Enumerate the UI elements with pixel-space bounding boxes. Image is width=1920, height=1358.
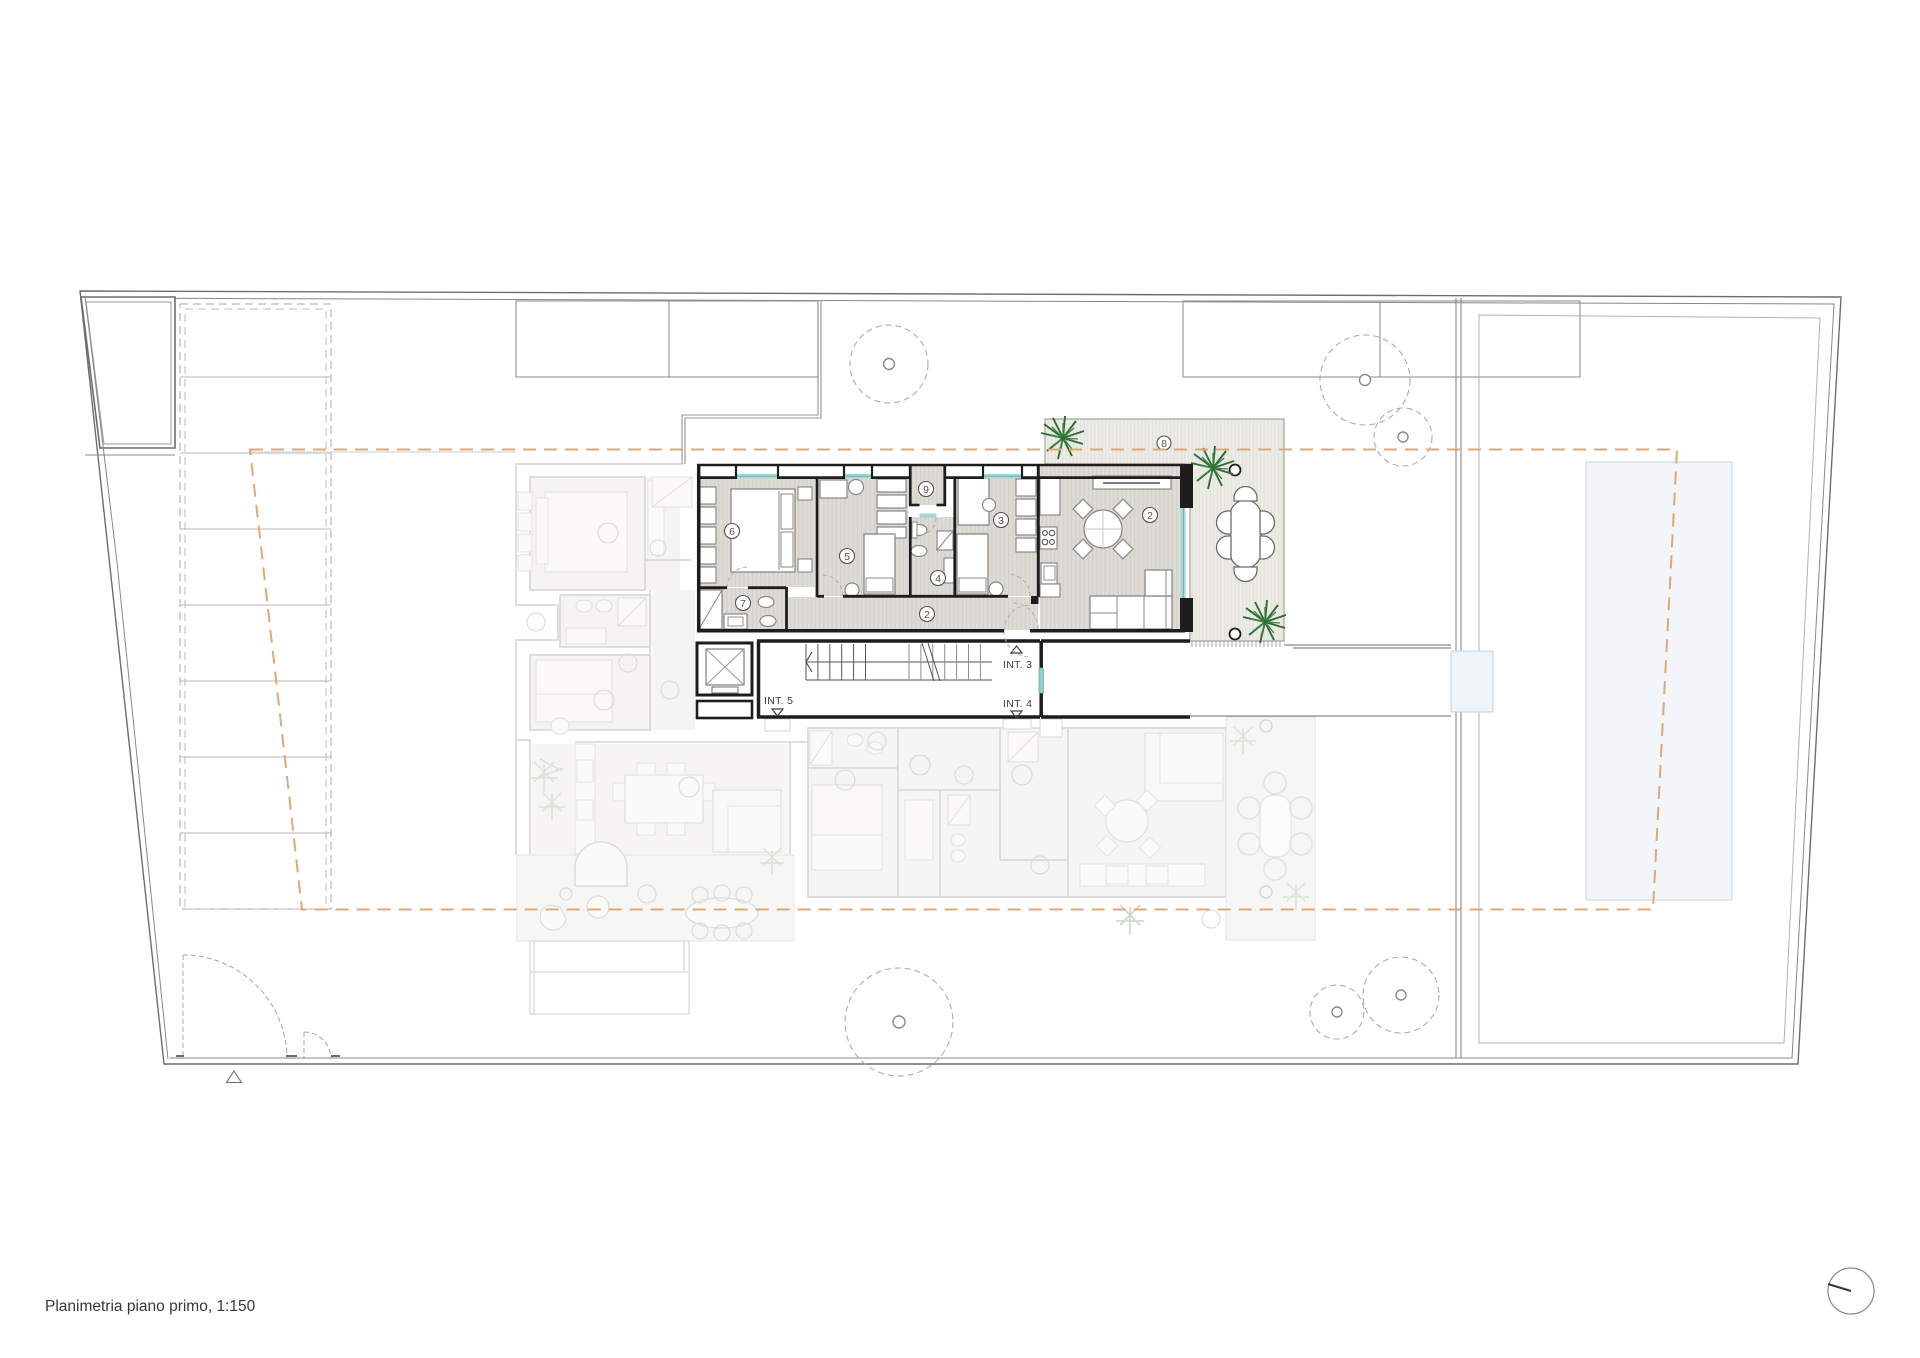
- svg-text:2: 2: [924, 609, 930, 621]
- svg-text:8: 8: [1161, 438, 1167, 450]
- svg-text:5: 5: [844, 551, 850, 563]
- svg-text:INT. 5: INT. 5: [764, 695, 793, 707]
- svg-text:Planimetria piano primo, 1:150: Planimetria piano primo, 1:150: [45, 1298, 256, 1315]
- svg-text:4: 4: [935, 573, 941, 585]
- svg-text:3: 3: [998, 515, 1004, 527]
- svg-text:INT. 3: INT. 3: [1003, 659, 1032, 671]
- svg-text:6: 6: [729, 526, 735, 538]
- svg-text:INT. 4: INT. 4: [1003, 698, 1032, 710]
- svg-text:7: 7: [740, 598, 746, 610]
- svg-text:9: 9: [923, 484, 929, 496]
- svg-text:2: 2: [1147, 510, 1153, 522]
